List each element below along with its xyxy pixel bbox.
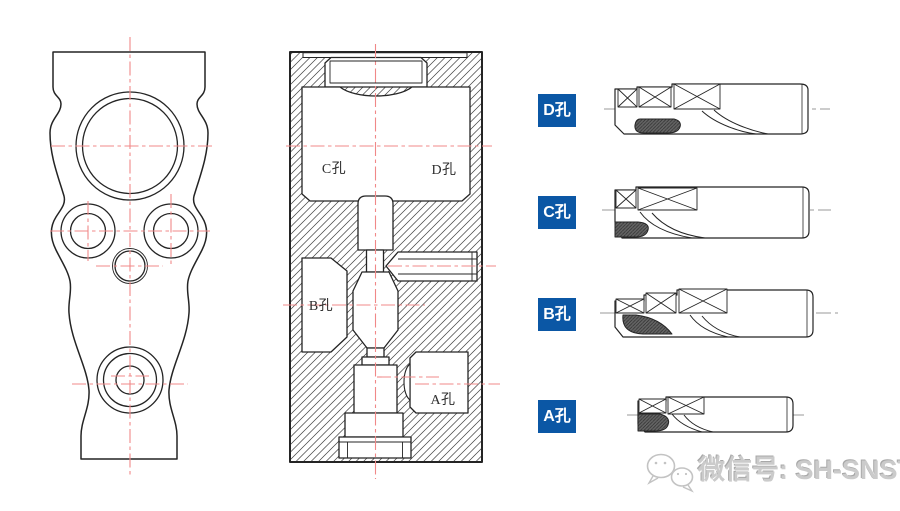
cavity-cd — [302, 87, 470, 201]
tool-d-inserts — [618, 84, 720, 109]
section-label-hole-b: B孔 — [309, 295, 333, 315]
tool-d-drawing — [604, 84, 830, 134]
tool-a-drawing — [627, 397, 807, 432]
front-view-outline — [50, 52, 208, 459]
tool-a-inserts — [639, 397, 704, 414]
tool-label-c: C孔 — [538, 196, 576, 229]
tool-b-drawing — [600, 289, 838, 337]
section-view — [283, 44, 500, 479]
tool-c-inserts — [616, 188, 697, 210]
front-view — [50, 37, 214, 478]
top-groove — [303, 53, 467, 58]
section-label-hole-c: C孔 — [322, 158, 346, 178]
tool-b-inserts — [616, 289, 727, 313]
tool-label-d: D孔 — [538, 94, 576, 127]
tool-label-b: B孔 — [538, 298, 576, 331]
tool-label-a: A孔 — [538, 400, 576, 433]
section-label-hole-a: A孔 — [430, 389, 455, 409]
watermark-text: 微信号: SH-SNSTC — [698, 448, 900, 487]
section-label-hole-d: D孔 — [431, 159, 456, 179]
technical-drawing-page: C孔 D孔 B孔 A孔 D孔 C孔 B孔 A孔 微信号: SH-SNSTC — [0, 0, 900, 511]
engineering-drawing — [0, 0, 900, 511]
watermark: 微信号: SH-SNSTC — [642, 448, 900, 487]
tool-c-drawing — [602, 187, 831, 238]
